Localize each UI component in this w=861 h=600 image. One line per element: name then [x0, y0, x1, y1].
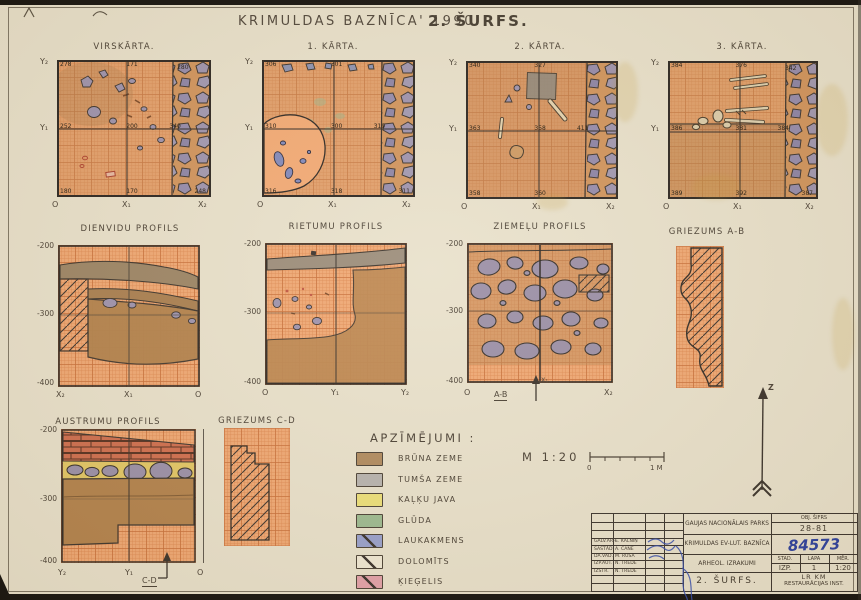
elevation-number: 384 [671, 63, 682, 69]
scale-col-label: MĒR. [837, 556, 849, 562]
north-arrow [746, 384, 782, 498]
elevation-number: 301 [331, 62, 342, 68]
section-cd-drawing [224, 428, 290, 546]
axis-label: X₁ [122, 200, 131, 209]
legend-item: KAĻĶU JAVA [356, 493, 516, 507]
legend-label: BRŪNA ZEME [398, 454, 463, 463]
elevation-number: 327 [534, 63, 545, 69]
axis-label: X₂ [198, 200, 207, 209]
elevation-number: 389 [671, 191, 682, 197]
elevation-number: 340 [169, 124, 180, 130]
elevation-number: 358 [469, 191, 480, 197]
signature-role: SASTĀD. [594, 547, 614, 552]
sheet-label: LAPA [808, 556, 820, 562]
signature-role: IZSTR. [594, 569, 609, 574]
legend-item: TUMŠA ZEME [356, 473, 516, 487]
axis-label: X₁ [532, 202, 541, 211]
elevation-number: 318 [331, 189, 342, 195]
profile-rietumu [265, 243, 407, 385]
depth-tick: -400 [437, 376, 463, 385]
table-line [800, 554, 801, 572]
profile-title-rietumu: RIETUMU PROFILS [289, 222, 384, 232]
elevation-number: 319 [374, 124, 385, 130]
axis-label: Y₁ [245, 123, 253, 132]
scale-value: 1:20 [835, 564, 851, 572]
depth-tick: -300 [28, 309, 54, 318]
table-line [829, 554, 830, 572]
elevation-number: 381 [736, 126, 747, 132]
legend-item: ĶIEĢELIS [356, 575, 516, 589]
legend-label: KAĻĶU JAVA [398, 495, 456, 504]
elevation-number: 392 [736, 191, 747, 197]
elevation-number: 170 [126, 189, 137, 195]
axis-label: X₁ [124, 390, 133, 399]
dolomite-hatch [579, 275, 609, 292]
section-arrow-cd [158, 552, 188, 580]
axis-label: O [52, 200, 58, 209]
axis-label: X₁ [541, 376, 548, 384]
find-outline [510, 146, 524, 159]
elevation-number: 310 [265, 124, 276, 130]
table-line [771, 514, 772, 591]
institute-line1: LR KM [801, 573, 826, 581]
object-code: 28-81 [800, 524, 828, 533]
profile-title-ziemelu: ZIEMEĻU PROFILS [493, 222, 586, 232]
axis-label: O [464, 388, 470, 397]
table-line [592, 522, 683, 523]
plan-title-2karta: 2. KĀRTA. [514, 42, 565, 52]
elevation-number: 278 [60, 62, 71, 68]
section-ab [676, 246, 724, 388]
signature-name: M. RŪSA [615, 554, 635, 559]
section-title-ab: GRIEZUMS A-B [669, 227, 745, 237]
axis-label: Y₂ [449, 58, 457, 67]
axis-label: X₂ [606, 202, 615, 211]
elevation-number: 306 [265, 62, 276, 68]
profile-austrumu [61, 429, 196, 563]
origin-line [203, 429, 204, 563]
signature-role: DA.VAD. [594, 554, 613, 559]
elevation-number: 340 [469, 63, 480, 69]
axis-label: Y₁ [331, 388, 339, 397]
drawing-name: 2. ŠURFS. [696, 576, 758, 586]
legend-label: DOLOMĪTS [398, 557, 450, 566]
elevation-number: 252 [60, 124, 71, 130]
table-line [592, 583, 683, 584]
elevation-number: 200 [126, 124, 137, 130]
elevation-number: 316 [265, 189, 276, 195]
object-name: KRIMULDAS EV-LUT. BAZNĪCA [683, 541, 771, 547]
elevation-number: 342 [785, 66, 796, 72]
elevation-number: 386 [671, 126, 682, 132]
elevation-number: 387 [802, 191, 813, 197]
scan-edge-top [0, 0, 861, 5]
elevation-number: 171 [126, 62, 137, 68]
profile-title-austrumu: AUSTRUMU PROFILS [55, 417, 160, 427]
legend-item: BRŪNA ZEME [356, 452, 516, 466]
legend-title: APZĪMĒJUMI : [370, 431, 476, 445]
signature-name: N. TRĒDE [615, 561, 637, 566]
profile-rietumu-drawing [265, 243, 407, 385]
axis-label: O [195, 390, 201, 399]
plan-title-1karta: 1. KĀRTA. [307, 42, 358, 52]
table-line [683, 572, 857, 573]
depth-tick: -300 [437, 306, 463, 315]
depth-tick: -200 [437, 239, 463, 248]
signature-name: N. TRĒDE [615, 569, 637, 574]
section-ab-drawing [676, 246, 724, 388]
axis-label: Y₂ [651, 58, 659, 67]
depth-tick: -200 [235, 239, 261, 248]
elevation-number: 384 [778, 126, 789, 132]
plan-1karta: 306 301 310 300 319 316 318 311 [262, 60, 415, 197]
legend-item: GLŪDA [356, 514, 516, 528]
organization: GAUJAS NACIONĀLAIS PARKS [683, 521, 771, 527]
depth-tick: -300 [31, 494, 57, 503]
inventory-number: 84573 [788, 535, 841, 555]
table-line [592, 530, 683, 531]
elevation-number: 358 [534, 126, 545, 132]
plan-2karta: 340 327 363 358 411 358 360 [466, 61, 618, 199]
axis-label: X₁ [733, 202, 742, 211]
stage-label: STAD. [778, 556, 793, 562]
plan-3karta: 384 376 342 386 381 384 389 392 387 [668, 61, 818, 199]
axis-label: Y₁ [651, 124, 659, 133]
axis-label: O [257, 200, 263, 209]
scale-start: 0 [587, 464, 591, 472]
legend-swatch [356, 473, 383, 487]
elevation-number: 363 [469, 126, 480, 132]
section-title-cd: GRIEZUMS C-D [218, 416, 296, 426]
profile-ziemelu [467, 243, 613, 383]
profile-dienvidu [58, 245, 200, 387]
axis-label: Y₂ [245, 57, 253, 66]
depth-tick: -300 [235, 307, 261, 316]
axis-label: Y₁ [40, 123, 48, 132]
sheet-subtitle: 2. ŠURFS. [428, 12, 529, 30]
legend-swatch [356, 493, 383, 507]
profile-dienvidu-drawing [58, 245, 200, 387]
axis-label: O [197, 568, 203, 577]
table-line [592, 575, 683, 576]
signature-name: A. CANE [615, 547, 634, 552]
plan-title-virskarta: VIRSKĀRTA. [93, 42, 154, 52]
elevation-number: 280 [177, 65, 188, 71]
north-label: Z [768, 383, 774, 392]
depth-tick: -400 [28, 378, 54, 387]
depth-tick: -200 [31, 425, 57, 434]
axis-label: O [461, 202, 467, 211]
institute-line2: RESTAURĀCIJAS INST. [784, 581, 844, 587]
registration-mark [92, 7, 110, 19]
profile-austrumu-drawing [61, 429, 196, 563]
axis-label: X₂ [56, 390, 65, 399]
elevation-number: 376 [736, 63, 747, 69]
dark-feature [527, 73, 557, 100]
axis-label: O [262, 388, 268, 397]
section-cd [224, 428, 290, 546]
axis-label: Y₂ [58, 568, 66, 577]
profile-title-dienvidu: DIENVIDU PROFILS [80, 224, 179, 234]
registration-mark [22, 6, 42, 20]
elevation-number: 300 [331, 124, 342, 130]
legend-swatch [356, 514, 383, 528]
depth-tick: -200 [28, 241, 54, 250]
signature-role: IZP.AUT. [594, 561, 612, 566]
depth-tick: -400 [235, 377, 261, 386]
work-type: ARHEOL. IZRAKUMI [698, 560, 755, 567]
axis-label: Y₂ [40, 57, 48, 66]
elevation-number: 180 [60, 189, 71, 195]
axis-label: Y₁ [125, 568, 133, 577]
axis-label: Y₁ [449, 124, 457, 133]
legend-label: ĶIEĢELIS [398, 577, 443, 586]
scan-edge-bottom [0, 594, 861, 600]
legend-item: LAUKAKMENS [356, 534, 516, 548]
plan-virskarta: 278 171 280 252 200 340 180 170 248 [57, 60, 211, 197]
profile-ziemelu-drawing [467, 243, 613, 383]
object-code-label: OBJ. ŠIFRS [801, 515, 827, 521]
plan-title-3karta: 3. KĀRTA. [716, 42, 767, 52]
axis-label: Y₂ [401, 388, 409, 397]
axis-label: X₁ [328, 200, 337, 209]
axis-label: X₂ [604, 388, 613, 397]
legend-swatch [356, 534, 383, 548]
title-block: OBJ. ŠIFRS 28-81 GAUJAS NACIONĀLAIS PARK… [591, 513, 858, 592]
section-line-label-cd: C-D [142, 576, 157, 587]
legend-swatch [356, 575, 383, 589]
legend-swatch [356, 555, 383, 569]
depth-tick: -400 [31, 556, 57, 565]
section-line-label-ab: A-B [494, 390, 507, 401]
elevation-number: 360 [534, 191, 545, 197]
axis-label: O [663, 202, 669, 211]
elevation-number: 411 [577, 126, 588, 132]
axis-label: X₂ [402, 200, 411, 209]
table-line [683, 554, 857, 555]
legend-item: DOLOMĪTS [356, 555, 516, 569]
elevation-number: 248 [195, 189, 206, 195]
scale-end: 1 M [650, 464, 663, 472]
legend-label: TUMŠA ZEME [398, 475, 463, 484]
stage-value: IZP. [779, 564, 791, 572]
legend-label: LAUKAKMENS [398, 536, 465, 545]
legend-label: GLŪDA [398, 516, 432, 525]
drawing-sheet: KRIMULDAS BAZNĪCA' 1990. 2. ŠURFS. VIRSK… [0, 0, 861, 600]
legend-swatch [356, 452, 383, 466]
sheet-number: 1 [812, 564, 816, 572]
axis-label: X₂ [805, 202, 814, 211]
signature-name: E. KALNIŅ [615, 539, 638, 544]
elevation-number: 311 [399, 189, 410, 195]
scale-label: M 1:20 [522, 450, 579, 464]
